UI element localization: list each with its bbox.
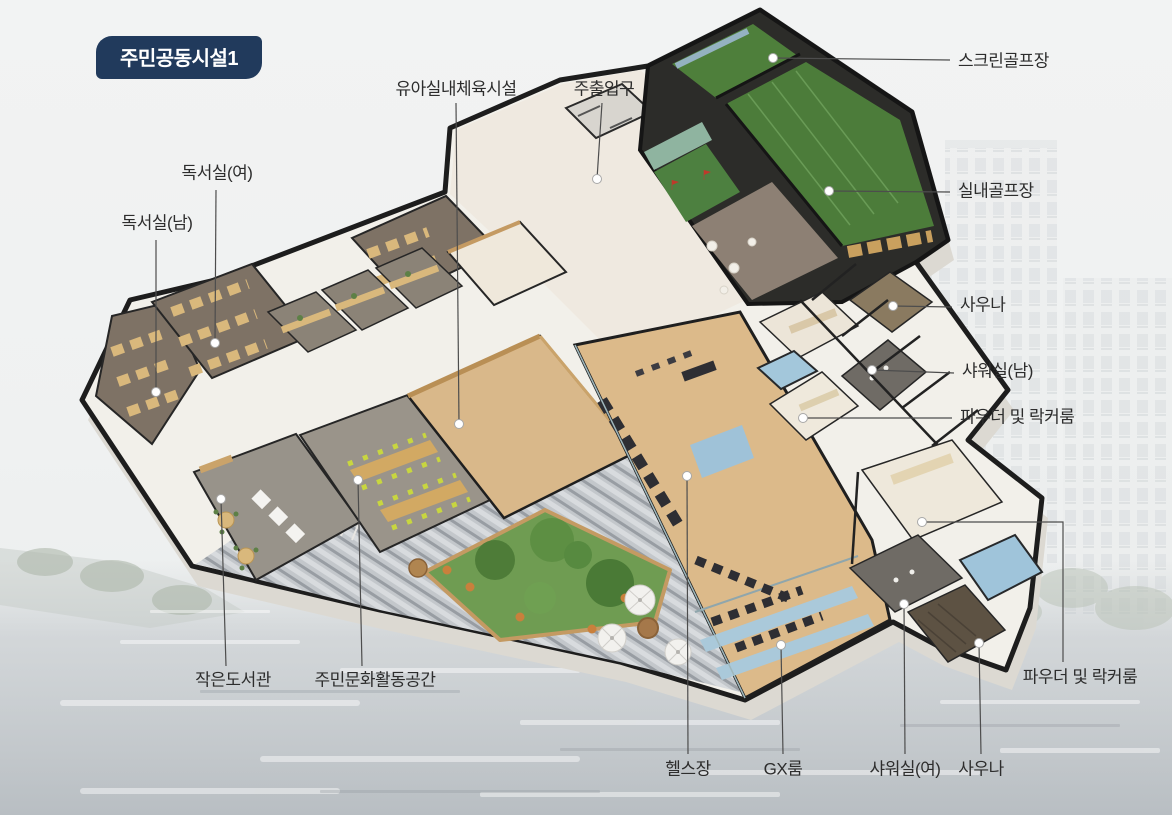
label-powder-locker-men: 파우더 및 락커룸 <box>960 409 1074 428</box>
label-shower-women: 샤워실(여) <box>870 761 941 780</box>
round-table <box>218 512 234 528</box>
label-gx-room: GX룸 <box>764 761 803 780</box>
label-shower-men: 샤워실(남) <box>962 363 1033 382</box>
rattan-table <box>638 618 658 638</box>
label-small-library: 작은도서관 <box>195 672 271 691</box>
label-screen-golf: 스크린골프장 <box>958 53 1049 72</box>
label-nursery-gym: 유아실내체육시설 <box>395 81 516 100</box>
floor-plan-page: 주민공동시설1 유아실내체육시설 주출입구 스크린골프장 실내골프장 사우나 샤… <box>0 0 1172 815</box>
label-powder-locker-women: 파우더 및 락커룸 <box>1023 669 1137 688</box>
label-sauna-men: 사우나 <box>960 297 1005 316</box>
label-reading-room-men: 독서실(남) <box>122 215 193 234</box>
round-table <box>238 548 254 564</box>
label-fitness-center: 헬스장 <box>665 761 710 780</box>
label-main-entrance: 주출입구 <box>574 81 635 100</box>
page-title-badge: 주민공동시설1 <box>96 36 262 79</box>
rattan-table <box>409 559 427 577</box>
label-indoor-golf: 실내골프장 <box>958 183 1034 202</box>
label-reading-room-women: 독서실(여) <box>182 165 253 184</box>
label-culture-space: 주민문화활동공간 <box>314 672 435 691</box>
label-sauna-women: 사우나 <box>958 761 1003 780</box>
